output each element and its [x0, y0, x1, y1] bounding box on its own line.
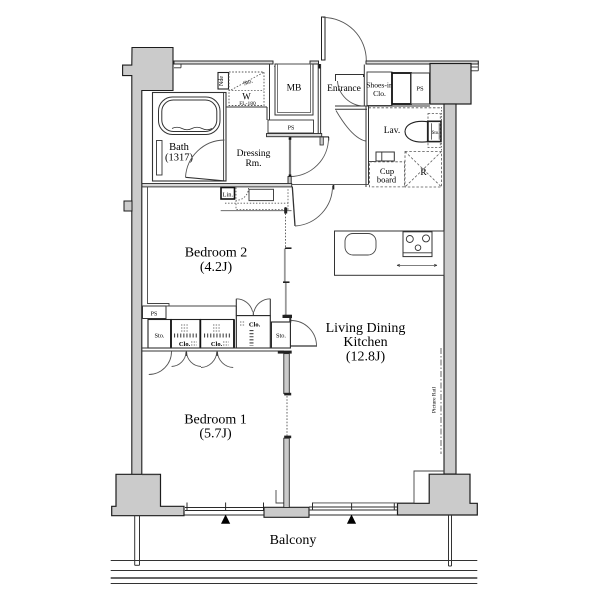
svg-text:Rm.: Rm. [245, 159, 261, 169]
svg-text:Kitchen: Kitchen [343, 335, 387, 350]
svg-text:Bath: Bath [169, 142, 190, 153]
svg-text:Balcony: Balcony [270, 533, 317, 548]
svg-text:(5.7J): (5.7J) [199, 427, 232, 442]
svg-text:Living Dining: Living Dining [326, 321, 406, 336]
svg-text:FL-180: FL-180 [239, 101, 256, 107]
svg-text:Clo.: Clo. [373, 89, 386, 98]
svg-text:Nde: Nde [219, 76, 225, 86]
svg-text:Entrance: Entrance [327, 84, 361, 94]
svg-text:Dressing: Dressing [237, 149, 271, 159]
svg-text:R: R [420, 168, 427, 178]
svg-text:Clo.: Clo. [179, 341, 191, 348]
svg-text:(12.8J): (12.8J) [346, 350, 386, 365]
svg-text:PS: PS [416, 86, 424, 93]
svg-text:Bedroom 2: Bedroom 2 [185, 246, 248, 261]
svg-text:PS: PS [288, 126, 295, 132]
svg-text:Sto.: Sto. [276, 333, 286, 340]
svg-text:Clo.: Clo. [211, 341, 223, 348]
svg-text:MB: MB [287, 84, 302, 94]
svg-text:Picture Rail: Picture Rail [432, 386, 438, 413]
svg-text:board: board [377, 175, 397, 185]
svg-text:Lin.: Lin. [222, 192, 233, 199]
svg-text:Clo.: Clo. [249, 322, 261, 329]
svg-text:Lav.: Lav. [384, 126, 401, 136]
svg-text:W: W [242, 92, 251, 102]
svg-text:PS: PS [151, 312, 158, 318]
svg-text:Sto.: Sto. [432, 131, 440, 136]
svg-text:(4.2J): (4.2J) [200, 260, 233, 275]
svg-text:Sto.: Sto. [155, 333, 165, 340]
svg-text:Bedroom 1: Bedroom 1 [184, 413, 247, 428]
